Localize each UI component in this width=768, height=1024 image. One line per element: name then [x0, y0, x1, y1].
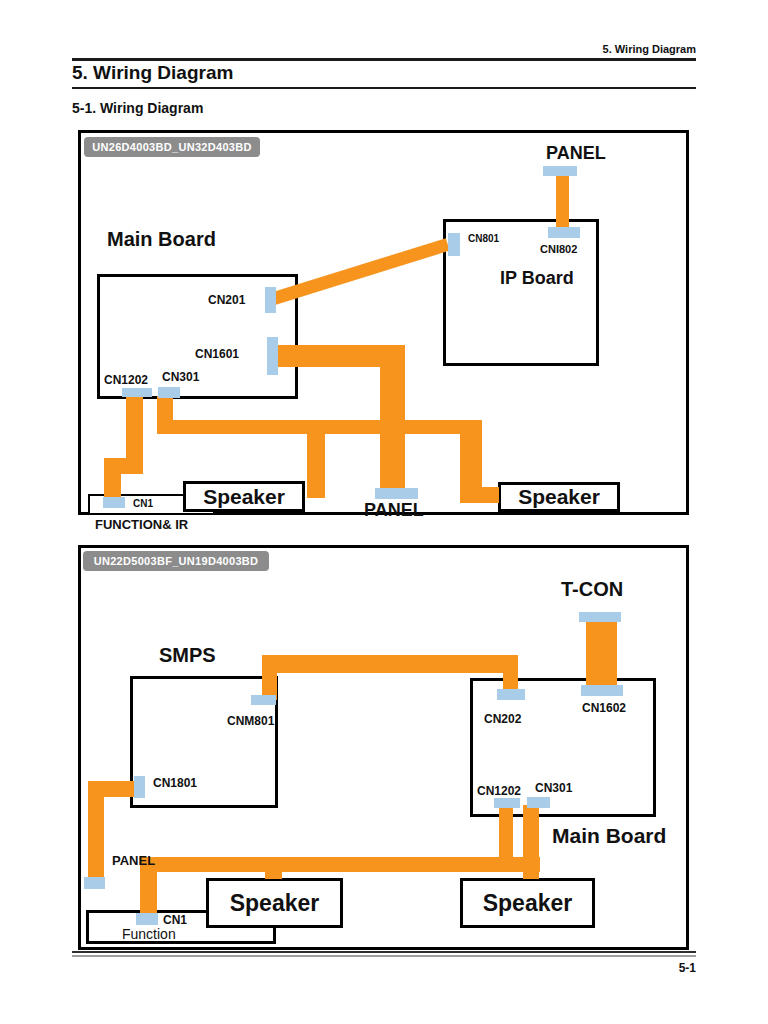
label-cnm801: CNM801 — [227, 714, 274, 728]
manual-page: 5. Wiring Diagram 5. Wiring Diagram 5-1.… — [0, 0, 768, 1024]
ip-board-box — [443, 219, 599, 366]
wire-cn1202-to-cn1 — [104, 458, 121, 499]
connector-cn1202-2 — [494, 798, 520, 808]
connector-cn1601 — [267, 337, 278, 375]
connector-panel-bottom — [375, 488, 418, 499]
page-number: 5-1 — [679, 961, 696, 975]
wire-bus2-branch-speaker-left — [265, 865, 282, 879]
speaker-right-label-2: Speaker — [483, 890, 573, 917]
footer-rule — [72, 951, 696, 957]
speaker-right-box-1: Speaker — [498, 482, 620, 512]
diagram2-model-badge: UN22D5003BF_UN19D4003BD — [83, 551, 269, 571]
label-cn201: CN201 — [208, 293, 245, 307]
label-function-ir: FUNCTION& IR — [95, 517, 188, 532]
connector-cn1602 — [581, 685, 623, 696]
header-top-rule — [72, 58, 696, 61]
connector-cn1-1 — [103, 497, 125, 508]
label-main-board-2: Main Board — [552, 824, 666, 848]
connector-cn201 — [265, 287, 276, 313]
speaker-left-box-1: Speaker — [183, 481, 305, 512]
connector-cn301-2 — [527, 797, 550, 808]
label-panel-top: PANEL — [546, 143, 606, 164]
connector-cn1202-1 — [122, 388, 152, 397]
label-tcon: T-CON — [561, 578, 623, 601]
label-cn202: CN202 — [484, 712, 521, 726]
wire-cn1601-vertical-panel — [380, 345, 405, 490]
speaker-left-box-2: Speaker — [206, 878, 343, 928]
label-cn301-2: CN301 — [535, 781, 572, 795]
connector-cni802 — [548, 227, 580, 238]
label-cn1801: CN1801 — [153, 776, 197, 790]
connector-panel-top — [543, 166, 577, 176]
label-smps: SMPS — [159, 644, 216, 667]
label-cn1602: CN1602 — [582, 701, 626, 715]
page-title: 5. Wiring Diagram — [72, 62, 233, 84]
label-panel-bottom: PANEL — [364, 500, 424, 521]
section-subtitle: 5-1. Wiring Diagram — [72, 100, 203, 116]
connector-cn801 — [448, 233, 460, 256]
label-cn1202-2: CN1202 — [477, 784, 521, 798]
connector-cn1-2 — [136, 913, 158, 925]
label-main-board-1: Main Board — [107, 228, 216, 251]
label-cn301-1: CN301 — [162, 370, 199, 384]
connector-tcon-top — [579, 612, 621, 622]
wire-cn1801-to-panel — [88, 781, 104, 879]
wire-bus-branch-speaker-left — [307, 430, 325, 498]
label-cn801: CN801 — [468, 233, 499, 244]
wire-tcon-to-cn1602 — [586, 620, 617, 688]
label-cn1-2: CN1 — [163, 913, 187, 927]
wire-cn1202-2-down — [499, 806, 513, 861]
wire-panel-to-ipboard — [556, 175, 569, 230]
label-cn1-1: CN1 — [133, 498, 153, 509]
label-cn1202-1: CN1202 — [104, 373, 148, 387]
wire-stub-speaker-right — [460, 487, 499, 503]
connector-cn202 — [497, 689, 525, 700]
wire-smps-mb-left-drop — [262, 655, 277, 700]
speaker-right-box-2: Speaker — [460, 878, 595, 928]
diagram1-model-badge: UN26D4003BD_UN32D403BD — [84, 137, 260, 157]
connector-panel-2 — [84, 877, 105, 889]
label-cni802: CNI802 — [540, 243, 577, 255]
label-cn1601: CN1601 — [195, 347, 239, 361]
label-ip-board: IP Board — [500, 268, 574, 289]
label-panel-2: PANEL — [112, 853, 155, 868]
label-function: Function — [122, 926, 176, 942]
wire-smps-mb-horizontal — [262, 655, 518, 673]
speaker-right-label-1: Speaker — [518, 485, 600, 509]
running-header: 5. Wiring Diagram — [603, 43, 696, 55]
connector-cnm801 — [251, 695, 276, 705]
speaker-left-label-2: Speaker — [230, 890, 320, 917]
wire-bottom-bus-2 — [140, 857, 540, 872]
connector-cn301-1 — [158, 387, 180, 398]
title-underline — [72, 87, 696, 89]
speaker-left-label-1: Speaker — [203, 485, 285, 509]
connector-cn1801 — [134, 776, 145, 798]
